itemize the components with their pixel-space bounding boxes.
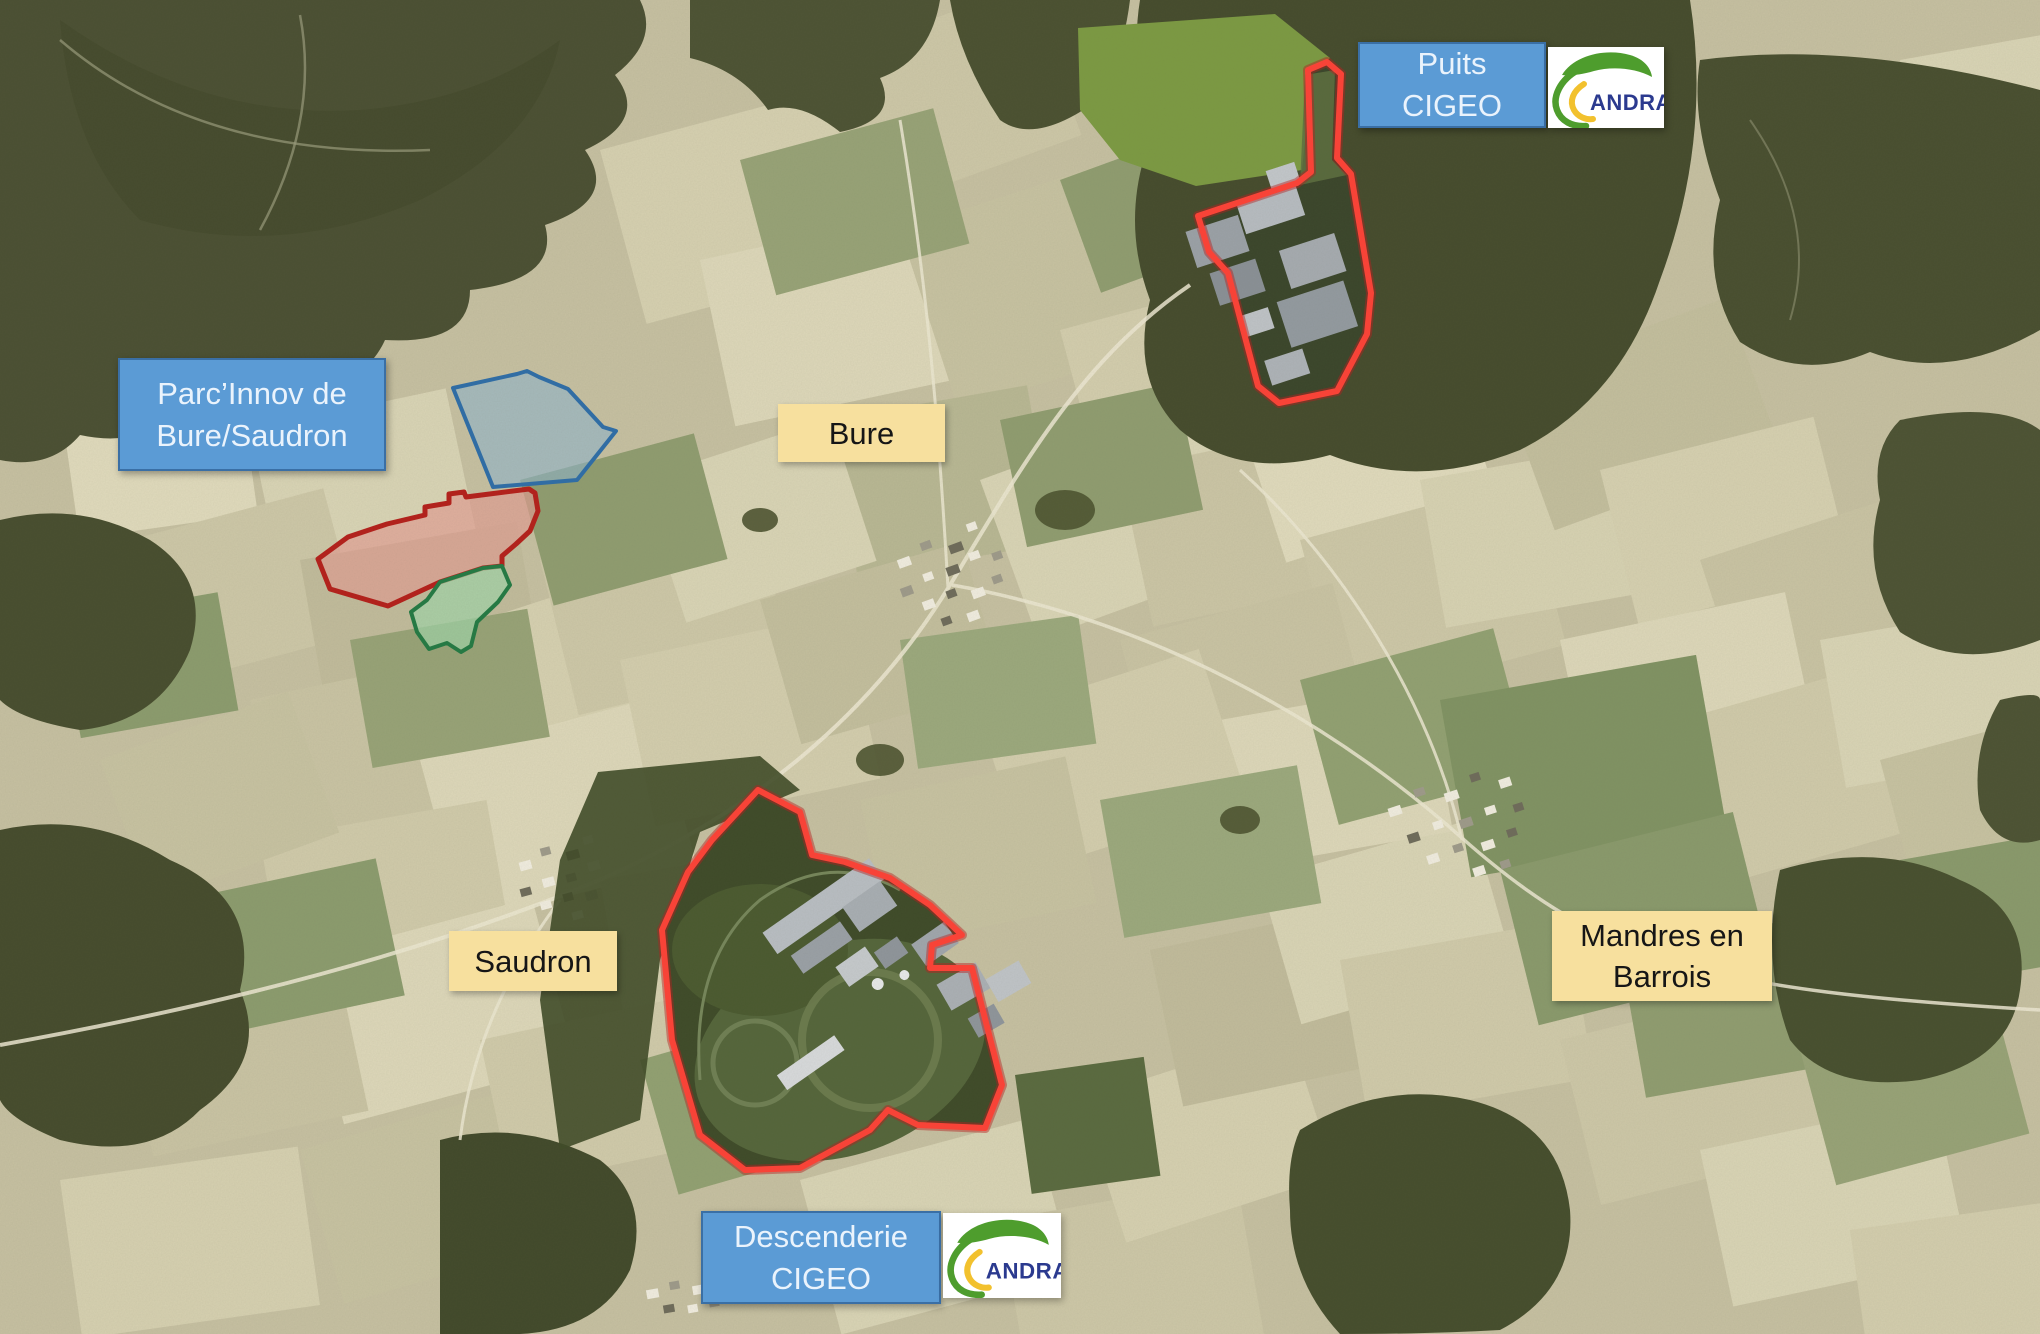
satellite-basemap bbox=[0, 0, 2040, 1334]
andra-logo-bottom: ANDRA bbox=[943, 1213, 1061, 1298]
bure-label: Bure bbox=[778, 404, 945, 462]
mandres-en-barrois-label: Mandres en Barrois bbox=[1552, 911, 1772, 1001]
puits-cigeo-label-line1: Puits bbox=[1418, 43, 1487, 85]
annotated-satellite-map: Puits CIGEO ANDRA Parc’Innov de Bure/Sau… bbox=[0, 0, 2040, 1334]
parcinnov-label-line2: Bure/Saudron bbox=[156, 415, 347, 457]
puits-cigeo-label-line2: CIGEO bbox=[1402, 85, 1502, 127]
mandres-label-line2: Barrois bbox=[1613, 956, 1711, 997]
parcinnov-label-line1: Parc’Innov de bbox=[157, 373, 347, 415]
descenderie-label-line2: CIGEO bbox=[771, 1258, 871, 1300]
andra-logo-top: ANDRA bbox=[1548, 47, 1664, 128]
mandres-label-line1: Mandres en bbox=[1580, 915, 1744, 956]
descenderie-cigeo-label: Descenderie CIGEO bbox=[701, 1211, 941, 1304]
andra-wordmark: ANDRA bbox=[1590, 90, 1664, 115]
terrain-grain bbox=[0, 0, 2040, 1334]
andra-wordmark: ANDRA bbox=[986, 1258, 1061, 1283]
saudron-label: Saudron bbox=[449, 931, 617, 991]
bure-label-text: Bure bbox=[829, 413, 894, 454]
parcinnov-label: Parc’Innov de Bure/Saudron bbox=[118, 358, 386, 471]
descenderie-label-line1: Descenderie bbox=[734, 1216, 908, 1258]
andra-logo-graphic: ANDRA bbox=[943, 1213, 1061, 1298]
andra-logo-graphic: ANDRA bbox=[1548, 47, 1664, 128]
puits-cigeo-label: Puits CIGEO bbox=[1358, 42, 1546, 128]
saudron-label-text: Saudron bbox=[474, 941, 591, 982]
